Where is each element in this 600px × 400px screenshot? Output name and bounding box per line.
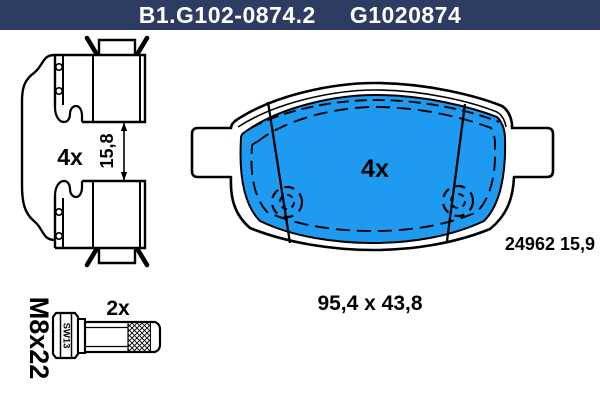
bolt-tip xyxy=(151,322,160,352)
pad-quantity-label: 4x xyxy=(361,155,389,183)
side-view-lower-section xyxy=(55,181,147,265)
thickness-dimension: 15,8 xyxy=(97,122,127,181)
dimension-arrowhead-down-icon xyxy=(121,172,127,181)
bolt-quantity-label: 2x xyxy=(106,297,130,320)
clip-prong-icon xyxy=(138,38,147,53)
part-code-label: B1.G102-0874.2 xyxy=(139,2,316,29)
rivet-dot-icon xyxy=(56,233,62,239)
bolt-shank xyxy=(85,322,151,352)
side-view-bracket-outline xyxy=(22,55,55,240)
bolt-wrench-size-label: SW13 xyxy=(61,323,72,349)
bolt-thread-size-label: M8x22 xyxy=(24,297,54,380)
rivet-dot-icon xyxy=(56,64,62,70)
bolt-head: SW13 xyxy=(53,313,78,358)
wva-code-label: 24962 15,9 xyxy=(505,234,595,254)
side-view-drawing: 15,8 4x xyxy=(15,35,185,295)
oem-code-label: G1020874 xyxy=(350,2,461,29)
side-view-quantity-label: 4x xyxy=(57,144,83,170)
rivet-dot-icon xyxy=(56,88,62,94)
pad-drawing: 4x 24962 15,9 xyxy=(185,72,598,287)
pad-dimensions-label: 95,4 x 43,8 xyxy=(280,292,460,316)
diagram-page: B1.G102-0874.2 G1020874 xyxy=(0,0,600,400)
title-bar: B1.G102-0874.2 G1020874 xyxy=(0,0,600,30)
dimension-arrowhead-up-icon xyxy=(121,123,127,132)
side-view-upper-section xyxy=(55,38,147,122)
bolt-thread-hatch xyxy=(128,323,151,351)
clip-prong-icon xyxy=(138,250,147,265)
clip-prong-icon xyxy=(87,38,96,53)
thickness-dimension-label: 15,8 xyxy=(97,133,117,168)
rivet-dot-icon xyxy=(56,209,62,215)
bolt-drawing: M8x22 2x SW13 xyxy=(22,288,172,393)
clip-prong-icon xyxy=(87,250,96,265)
